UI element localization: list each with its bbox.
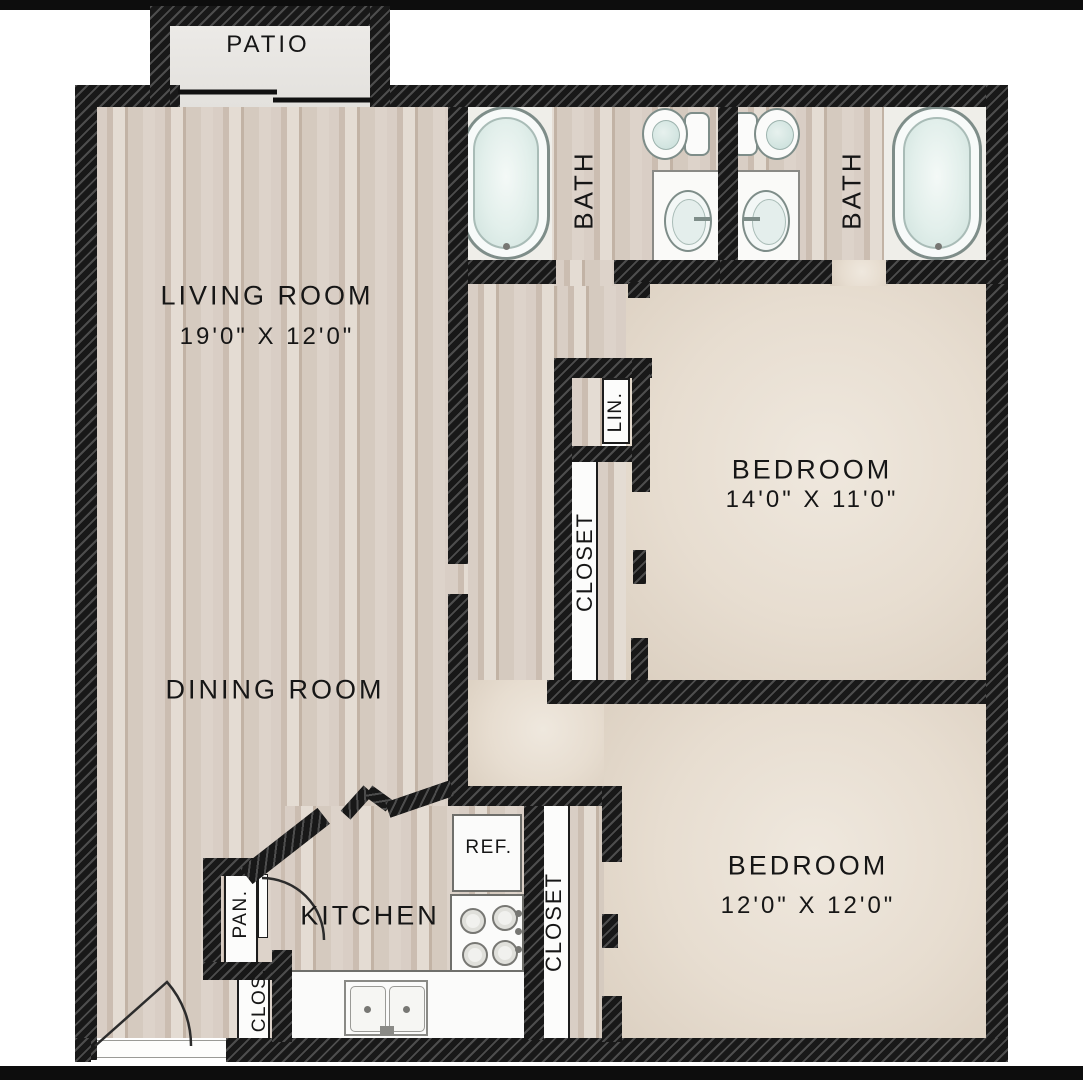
bath2-label: BATH <box>837 150 868 229</box>
living-room-dims: 19'0" X 12'0" <box>180 323 355 351</box>
pantry-label: PAN. <box>230 890 252 939</box>
wall <box>986 85 1008 1060</box>
wall <box>75 85 97 1060</box>
stove-knob <box>515 910 522 917</box>
kitchen-sink-fixture <box>344 980 428 1036</box>
bedroom2-dims: 12'0" X 12'0" <box>721 892 896 920</box>
wall <box>720 260 832 284</box>
sink-bowl <box>672 199 706 245</box>
toilet-bowl-fixture <box>754 108 800 160</box>
kitchen-label: KITCHEN <box>300 901 440 932</box>
bathtub-basin <box>473 117 539 249</box>
patio-wall <box>370 6 390 107</box>
hallway-floor <box>558 282 634 360</box>
bedroom1-label: BEDROOM <box>732 455 893 486</box>
bedroom1-dims: 14'0" X 11'0" <box>726 486 899 514</box>
linen-closet-label: LIN. <box>605 392 627 433</box>
stove-knob <box>515 928 522 935</box>
faucet-icon <box>694 217 710 221</box>
wall <box>272 950 292 1042</box>
closet1-label: CLOSET <box>572 512 598 612</box>
wall <box>628 282 650 298</box>
linen-closet-floor <box>572 378 602 446</box>
wall <box>718 107 738 266</box>
bottom-letterbox-bar <box>0 1066 1083 1080</box>
sink-vanity-fixture <box>652 170 720 267</box>
closet1-floor <box>598 462 626 684</box>
bath1-label: BATH <box>569 150 600 229</box>
bathtub-fixture <box>892 106 982 260</box>
faucet-icon <box>744 217 760 221</box>
toilet-bowl-fixture <box>642 108 688 160</box>
bath2-doorway-floor <box>830 260 888 286</box>
sink-bowl <box>752 199 786 245</box>
patio-label: PATIO <box>226 31 309 59</box>
wall <box>547 680 986 704</box>
stove-fixture <box>450 894 524 972</box>
entry-closet-label: CLOS. <box>249 968 271 1033</box>
faucet-icon <box>380 1026 394 1034</box>
burner-icon <box>460 908 486 934</box>
bathtub-drain <box>935 243 942 250</box>
entry-door-threshold <box>91 1040 227 1058</box>
living-room-label: LIVING ROOM <box>160 281 373 312</box>
hallway-floor <box>468 268 560 682</box>
refrigerator-fixture: REF. <box>452 814 522 892</box>
closet1-door-dash <box>633 550 646 584</box>
closet2-door-dash <box>602 914 618 948</box>
burner-icon <box>462 942 488 968</box>
wall <box>602 786 622 862</box>
patio-wall <box>150 6 390 26</box>
bath1-doorway-floor <box>554 260 616 286</box>
wall <box>632 358 650 492</box>
closet2-label: CLOSET <box>541 872 567 972</box>
bathtub-drain <box>503 243 510 250</box>
sink-basin <box>664 190 712 252</box>
floor-plan: REF. <box>0 0 1083 1080</box>
burner-icon <box>492 905 518 931</box>
sink-basin <box>742 190 790 252</box>
patio-wall <box>150 6 170 107</box>
toilet-water <box>652 120 680 150</box>
wall <box>75 1038 91 1062</box>
stove-knob <box>515 946 522 953</box>
bedroom2-label: BEDROOM <box>728 851 889 882</box>
pantry-door-leaf <box>258 874 268 938</box>
wall <box>373 85 1008 107</box>
closet2-floor <box>568 806 604 1042</box>
wall <box>448 107 468 564</box>
wall <box>554 358 572 684</box>
wall <box>886 260 1008 284</box>
wall <box>602 996 622 1042</box>
wall <box>614 260 720 284</box>
refrigerator-label: REF. <box>465 837 512 859</box>
bathtub-basin <box>903 117 971 249</box>
wall <box>448 594 468 790</box>
toilet-water <box>766 120 794 150</box>
sink-drain <box>364 1006 371 1013</box>
wall <box>448 786 614 806</box>
wall <box>572 446 632 462</box>
wall <box>631 638 648 684</box>
sink-drain <box>403 1006 410 1013</box>
bathtub-fixture <box>462 106 550 260</box>
dining-room-label: DINING ROOM <box>166 675 385 706</box>
sink-vanity-fixture <box>730 170 800 267</box>
burner-icon <box>492 940 518 966</box>
